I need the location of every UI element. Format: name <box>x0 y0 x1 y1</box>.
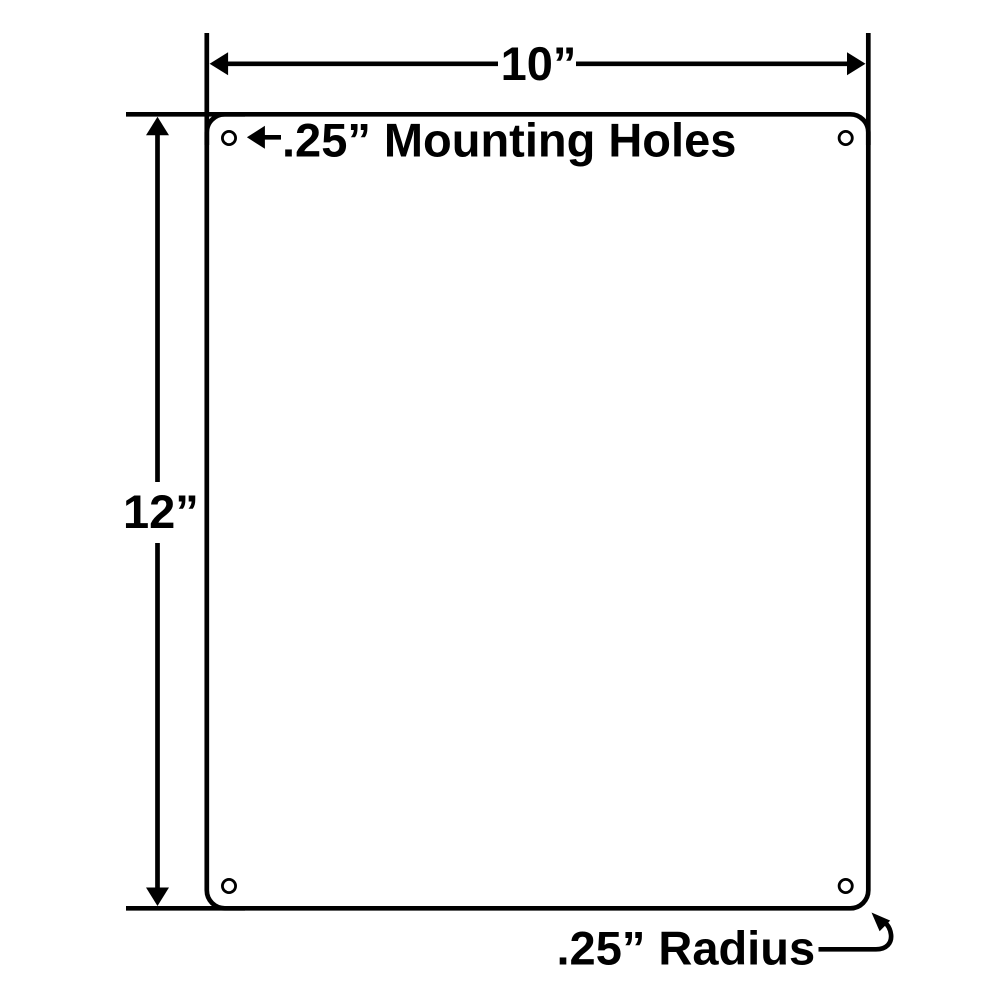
svg-text:.25” Mounting Holes: .25” Mounting Holes <box>282 114 736 167</box>
svg-text:10”: 10” <box>501 37 577 90</box>
svg-text:.25” Radius: .25” Radius <box>557 922 816 975</box>
svg-text:12”: 12” <box>123 485 199 538</box>
